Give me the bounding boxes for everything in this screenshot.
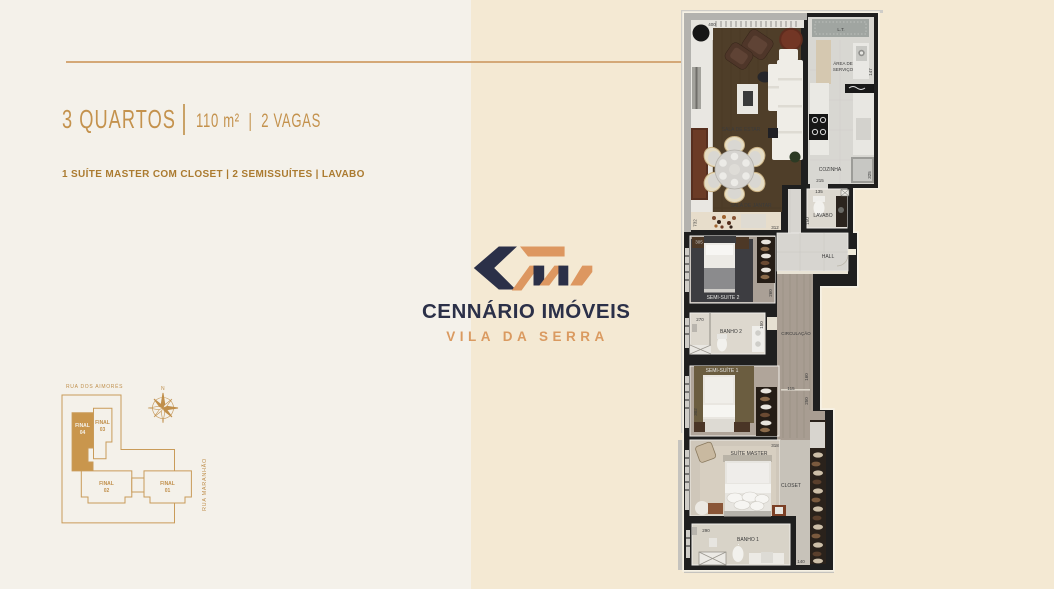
- svg-text:290: 290: [702, 528, 710, 533]
- svg-text:312: 312: [771, 225, 779, 230]
- svg-text:SALA DE ESTAR: SALA DE ESTAR: [722, 127, 761, 133]
- svg-text:SEMI-SUITE 2: SEMI-SUITE 2: [707, 295, 740, 301]
- svg-text:BANHO 2: BANHO 2: [720, 329, 742, 335]
- svg-text:150: 150: [759, 321, 764, 329]
- svg-text:250: 250: [804, 397, 809, 405]
- svg-text:115: 115: [787, 386, 795, 391]
- svg-text:BANHO 1: BANHO 1: [737, 537, 759, 543]
- svg-text:302: 302: [693, 408, 698, 416]
- svg-text:160: 160: [804, 373, 809, 381]
- svg-text:SALA DE JANTAR: SALA DE JANTAR: [730, 203, 772, 209]
- svg-text:400: 400: [708, 22, 716, 27]
- svg-text:LAVABO: LAVABO: [813, 213, 832, 219]
- svg-text:SERVIÇO: SERVIÇO: [833, 67, 854, 72]
- svg-text:SEMI-SUÍTE 1: SEMI-SUÍTE 1: [706, 367, 739, 374]
- svg-text:L.T.: L.T.: [837, 27, 844, 32]
- svg-text:270: 270: [696, 317, 704, 322]
- svg-text:135: 135: [815, 189, 823, 194]
- svg-text:CIRCULAÇÃO: CIRCULAÇÃO: [781, 330, 811, 336]
- svg-text:260: 260: [768, 289, 773, 297]
- svg-text:140: 140: [797, 559, 805, 564]
- svg-text:305: 305: [695, 240, 703, 245]
- svg-text:HALL: HALL: [822, 254, 835, 260]
- svg-text:318: 318: [771, 443, 779, 448]
- svg-text:215: 215: [816, 178, 824, 183]
- svg-text:325: 325: [867, 171, 872, 179]
- svg-text:150: 150: [805, 217, 810, 225]
- svg-text:ÁREA DE: ÁREA DE: [833, 60, 853, 66]
- svg-text:147: 147: [868, 68, 873, 76]
- svg-text:732: 732: [693, 219, 698, 227]
- svg-text:CLOSET: CLOSET: [781, 483, 801, 489]
- svg-text:SUÍTE MASTER: SUÍTE MASTER: [731, 450, 768, 457]
- svg-text:COZINHA: COZINHA: [819, 167, 842, 173]
